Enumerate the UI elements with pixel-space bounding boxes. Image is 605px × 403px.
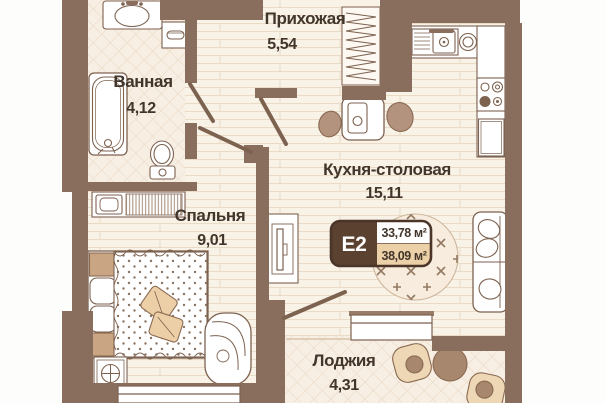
sofa (473, 212, 508, 312)
fridge (479, 119, 505, 156)
room-label-bathroom: Ванная (113, 72, 172, 91)
floor-plan: Ванная 4,12 Прихожая 5,54 Кухня-столовая… (0, 0, 605, 403)
floor-plan-drawing: Ванная 4,12 Прихожая 5,54 Кухня-столовая… (0, 0, 605, 403)
dining-table (342, 97, 384, 140)
tv-console (268, 214, 298, 283)
stove (477, 78, 505, 111)
room-area-bedroom: 9,01 (197, 232, 227, 249)
room-area-loggia: 4,31 (329, 377, 359, 394)
loggia-table (433, 347, 467, 381)
window-bedroom (118, 386, 240, 403)
room-area-hallway: 5,54 (267, 36, 297, 53)
armchair (205, 313, 251, 385)
room-area-bathroom: 4,12 (126, 100, 156, 117)
room-area-kitchen: 15,11 (365, 185, 403, 202)
unit-badge: E2 33,78 м² 38,09 м² (331, 221, 431, 266)
window-living-loggia (351, 315, 432, 340)
bed (88, 250, 208, 359)
unit-area-living: 33,78 м² (382, 226, 427, 240)
room-label-bedroom: Спальня (175, 206, 246, 225)
room-label-hallway: Прихожая (265, 9, 346, 28)
washbasin (103, 1, 162, 29)
room-label-kitchen: Кухня-столовая (323, 160, 451, 179)
unit-code: E2 (342, 233, 367, 256)
toilet (150, 141, 175, 179)
room-label-loggia: Лоджия (313, 351, 376, 370)
unit-area-total: 38,09 м² (382, 249, 427, 263)
wardrobe (342, 7, 380, 85)
dresser (92, 192, 185, 217)
